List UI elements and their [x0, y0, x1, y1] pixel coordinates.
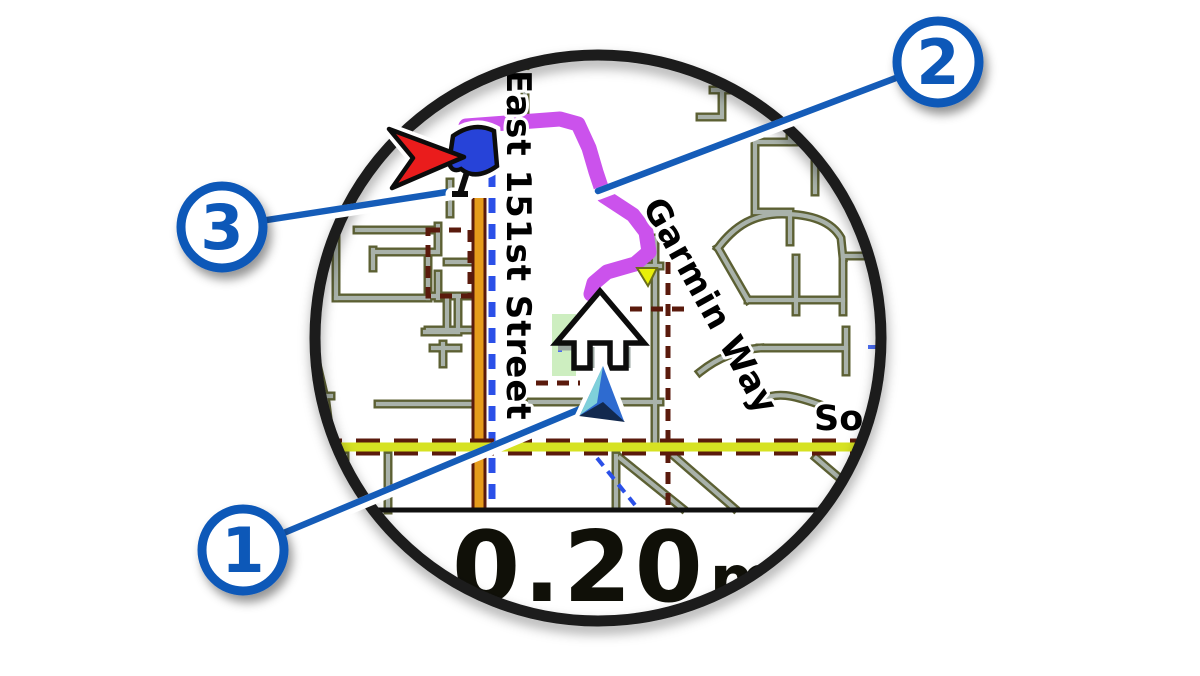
callout-2-badge: 2 — [897, 21, 979, 103]
callout-3-badge: 3 — [181, 186, 263, 268]
blue-flag-icon — [449, 127, 497, 174]
callout-3-number: 3 — [200, 191, 243, 264]
manual-figure-watch-navigation: East 151st Street Garmin Way Sout 0.20mi — [0, 0, 1200, 676]
callout-1-badge: 1 — [202, 509, 284, 591]
street-label-east-151st: East 151st Street — [498, 70, 538, 421]
figure-canvas: East 151st Street Garmin Way Sout 0.20mi — [0, 0, 1200, 676]
callout-2-number: 2 — [916, 26, 959, 99]
callout-1-number: 1 — [221, 514, 264, 587]
